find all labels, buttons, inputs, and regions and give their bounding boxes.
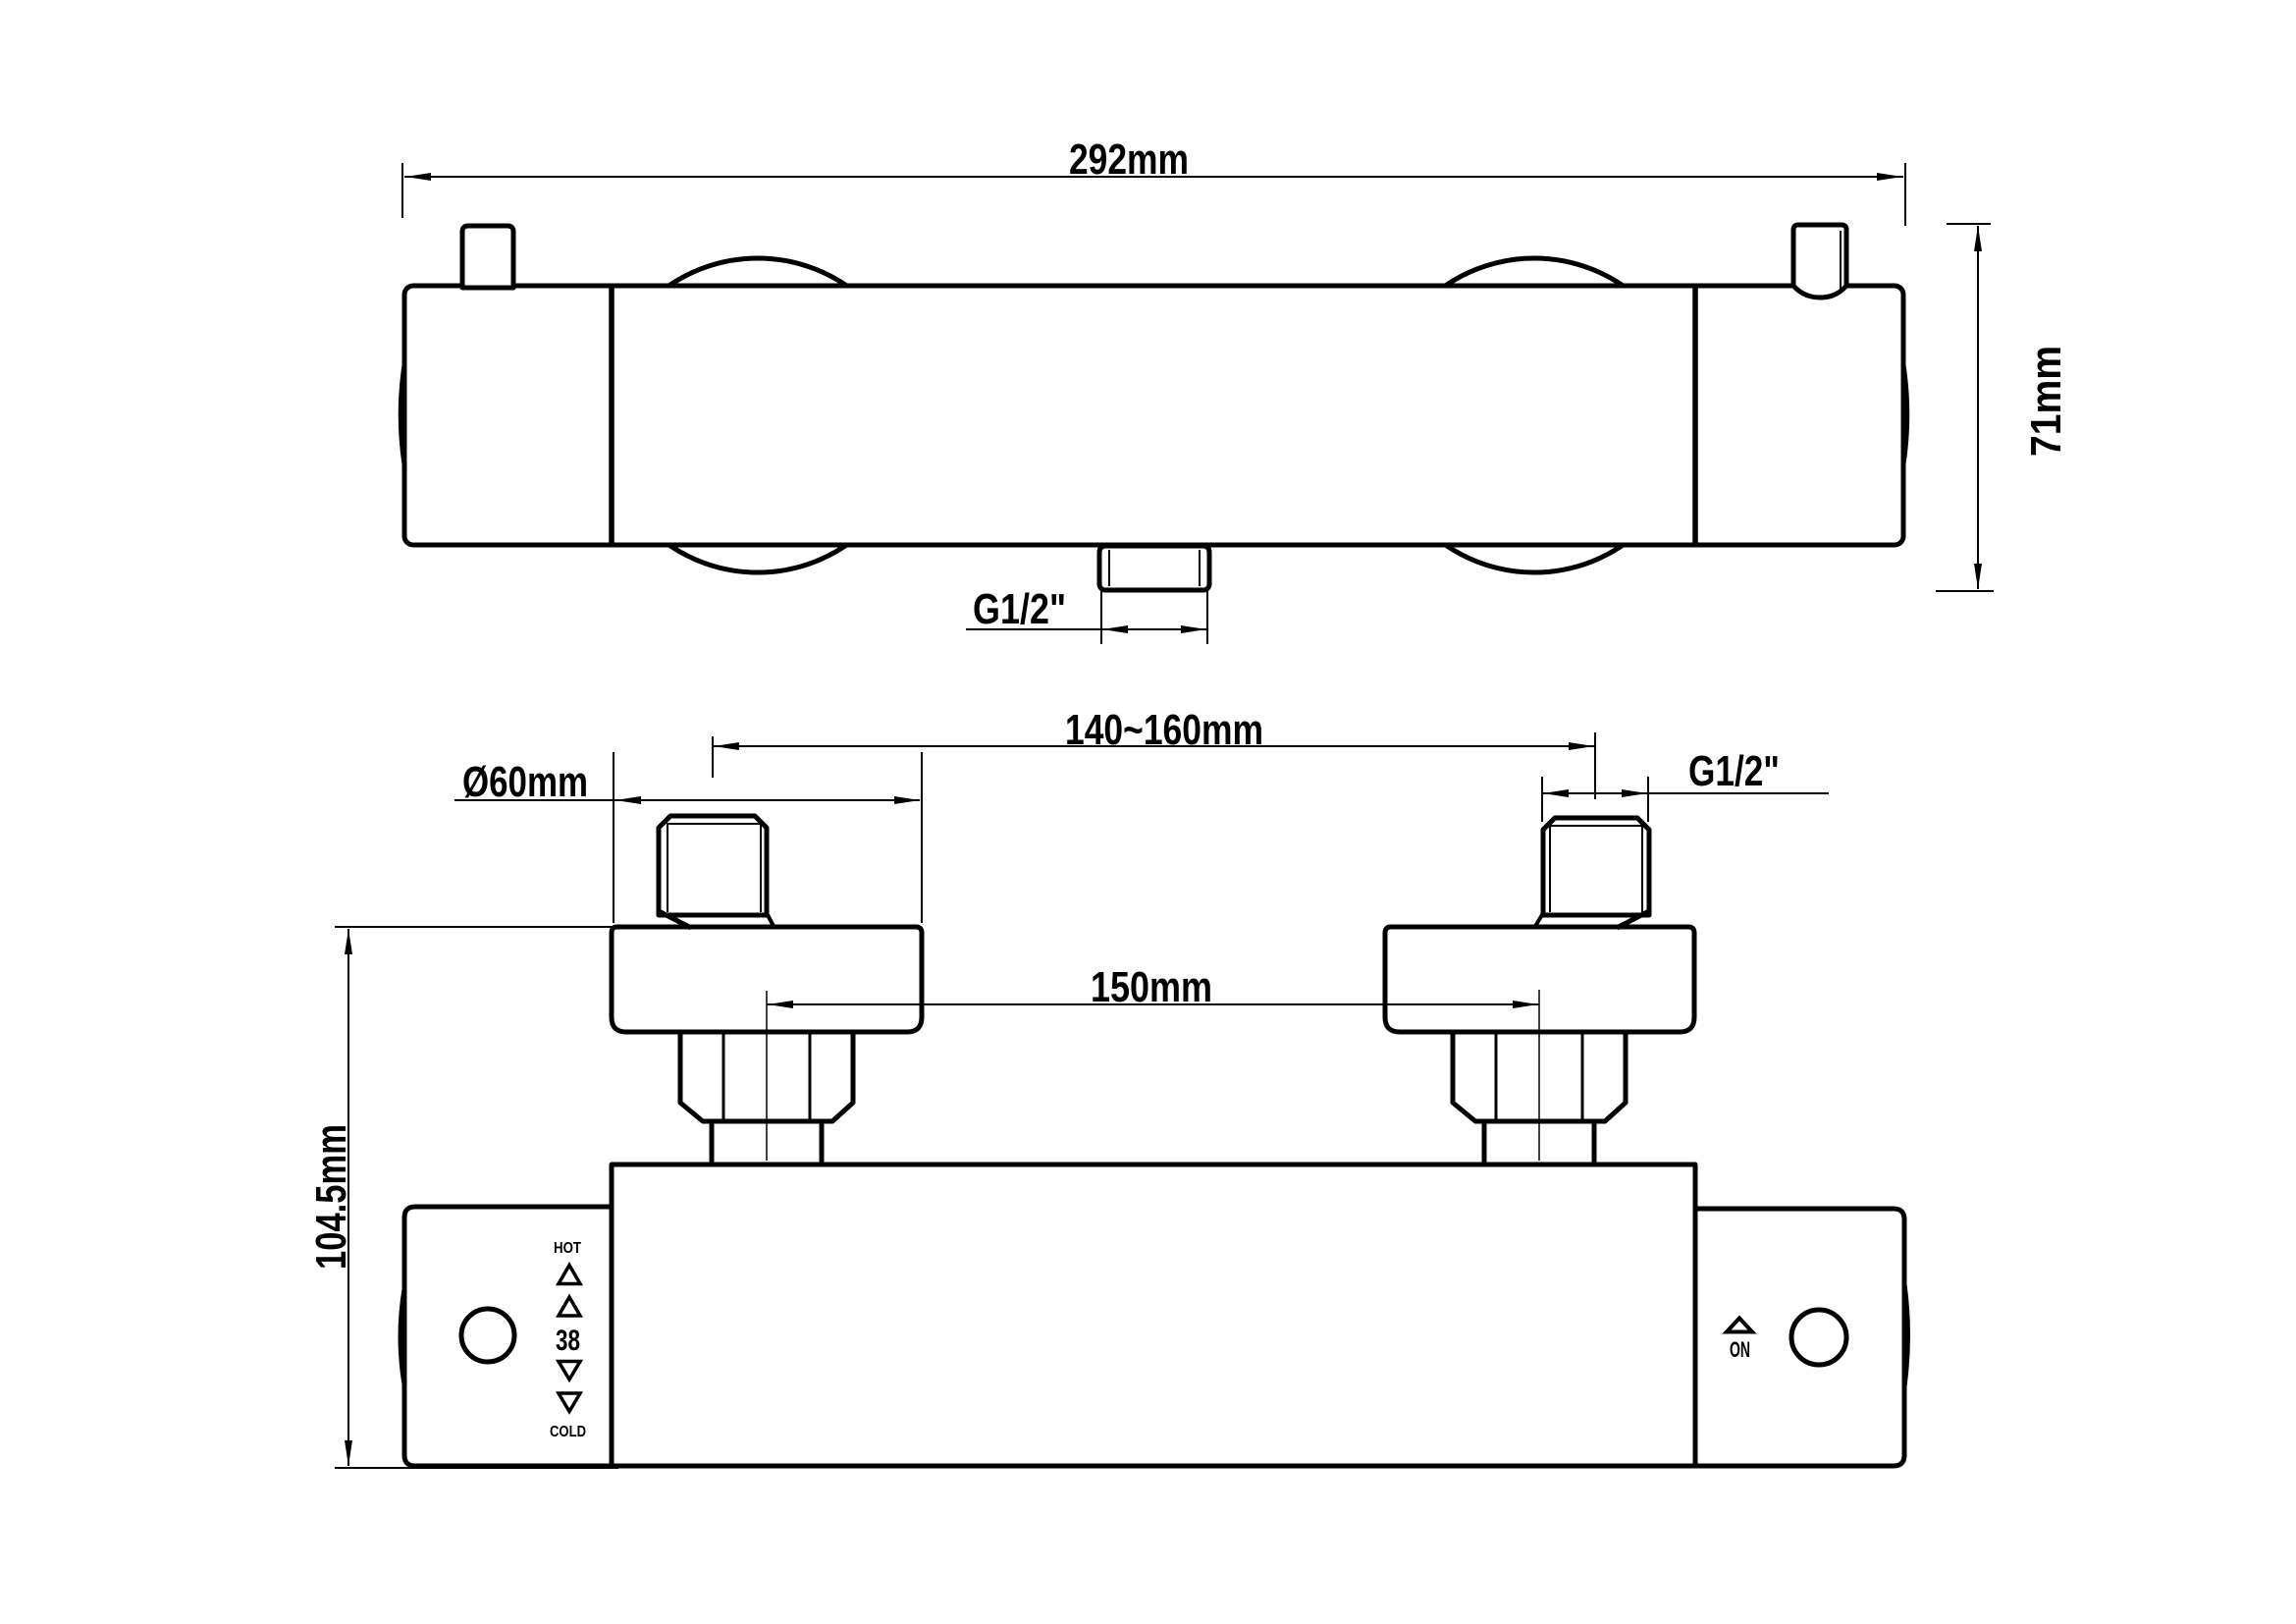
svg-text:104.5mm: 104.5mm xyxy=(307,1124,355,1270)
svg-text:HOT: HOT xyxy=(554,1240,581,1257)
svg-text:38: 38 xyxy=(556,1325,580,1357)
svg-text:71mm: 71mm xyxy=(2022,346,2070,457)
svg-text:ON: ON xyxy=(1730,1337,1750,1362)
svg-text:292mm: 292mm xyxy=(1069,135,1189,184)
svg-text:Ø60mm: Ø60mm xyxy=(462,758,588,806)
svg-text:G1/2": G1/2" xyxy=(973,585,1066,633)
svg-text:G1/2": G1/2" xyxy=(1688,747,1780,795)
svg-text:150mm: 150mm xyxy=(1091,963,1212,1011)
svg-text:140~160mm: 140~160mm xyxy=(1065,706,1263,754)
svg-text:COLD: COLD xyxy=(550,1424,586,1440)
